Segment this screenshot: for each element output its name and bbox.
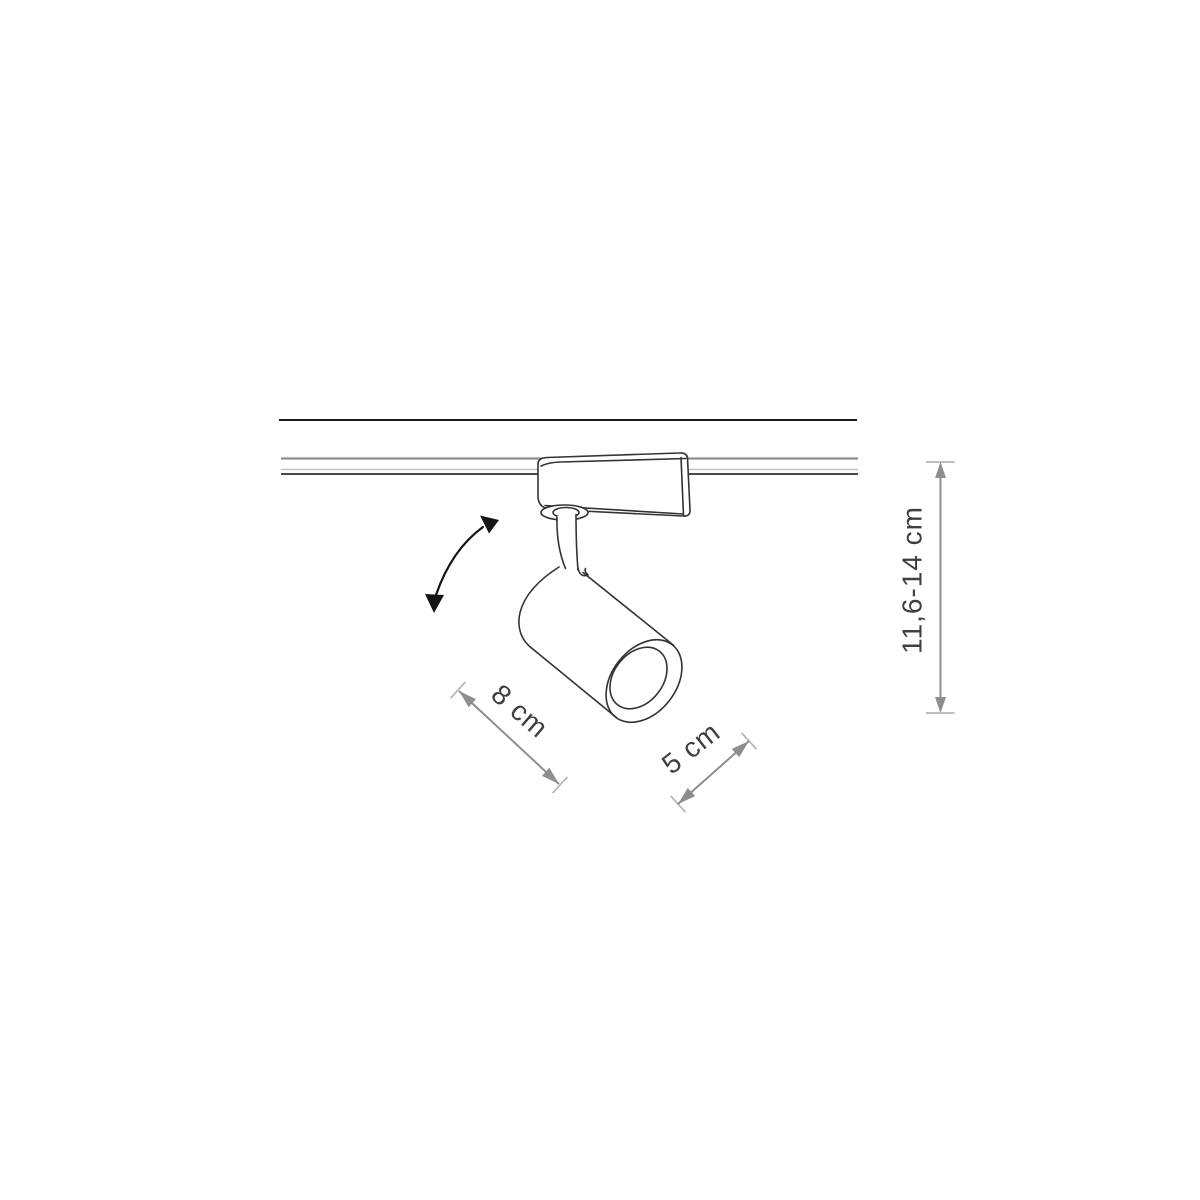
spotlight-head bbox=[519, 566, 698, 737]
dimension-label-height-range: 11,6-14 cm bbox=[897, 506, 928, 654]
track-adapter bbox=[538, 453, 690, 520]
dim-arrowhead bbox=[935, 462, 946, 478]
rotation-arc bbox=[436, 527, 483, 595]
dimension-spot-diameter: 5 cm bbox=[656, 716, 756, 812]
rotation-arrowhead-down bbox=[425, 594, 444, 613]
spot-body-fill bbox=[519, 566, 684, 723]
diagram-canvas: 8 cm 5 cm 11,6-14 cm bbox=[0, 0, 1200, 1200]
dimension-spot-length: 8 cm bbox=[451, 678, 568, 793]
rotation-arrow-icon bbox=[425, 516, 499, 614]
rotation-arrowhead-up bbox=[480, 516, 499, 534]
dim-arrowhead bbox=[935, 697, 946, 713]
dimension-label-spot-length: 8 cm bbox=[485, 678, 554, 744]
track-spotlight-dimension-drawing: 8 cm 5 cm 11,6-14 cm bbox=[0, 0, 1200, 1200]
stem-fill bbox=[557, 515, 578, 571]
dimension-height-range: 11,6-14 cm bbox=[897, 462, 955, 713]
